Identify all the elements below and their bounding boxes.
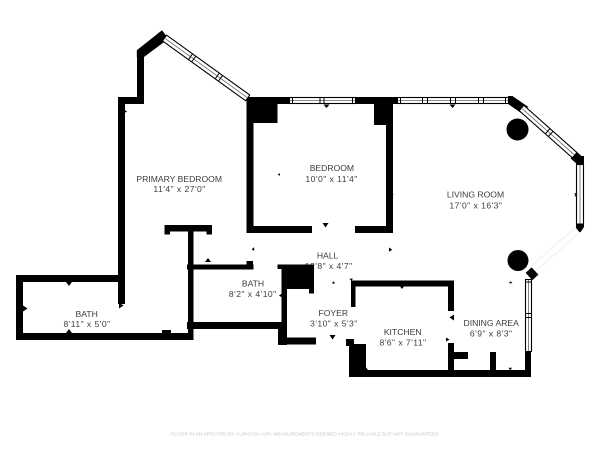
svg-text:KITCHEN: KITCHEN: [384, 327, 422, 337]
svg-text:BATH: BATH: [242, 279, 264, 289]
svg-text:6'9" x 8'3": 6'9" x 8'3": [470, 329, 513, 339]
svg-text:FOYER: FOYER: [318, 308, 348, 318]
svg-text:HALL: HALL: [317, 251, 339, 261]
svg-text:8'11" x 5'0": 8'11" x 5'0": [63, 319, 110, 329]
svg-text:11'4" x 27'0": 11'4" x 27'0": [153, 184, 205, 194]
svg-text:FLOOR PLAN CREATED BY CUBICASA: FLOOR PLAN CREATED BY CUBICASA APP, MEAS…: [171, 432, 439, 438]
svg-text:3'10" x 5'3": 3'10" x 5'3": [310, 319, 358, 329]
svg-text:BATH: BATH: [76, 309, 98, 319]
svg-text:8'2" x 4'10": 8'2" x 4'10": [229, 289, 277, 299]
svg-text:10'0" x 11'4": 10'0" x 11'4": [305, 174, 357, 184]
svg-text:17'0" x 16'3": 17'0" x 16'3": [449, 200, 502, 210]
svg-text:8'6" x 7'11": 8'6" x 7'11": [379, 337, 426, 347]
svg-text:BEDROOM: BEDROOM: [310, 163, 354, 173]
svg-text:PRIMARY BEDROOM: PRIMARY BEDROOM: [136, 174, 222, 184]
svg-text:LIVING ROOM: LIVING ROOM: [447, 189, 504, 199]
svg-text:DINING AREA: DINING AREA: [463, 318, 519, 328]
